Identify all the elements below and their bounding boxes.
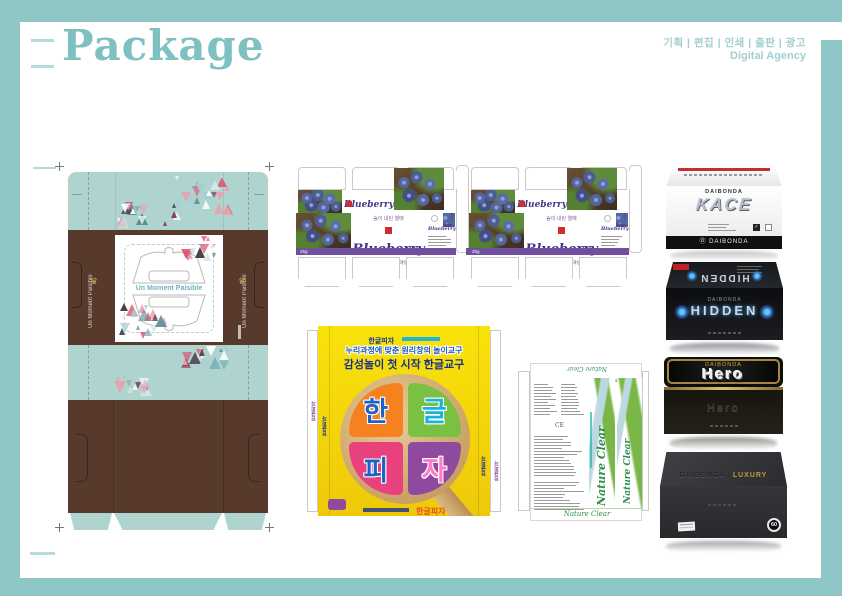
bottom-flap-outline — [525, 257, 573, 287]
triangle-decoration — [140, 386, 148, 394]
micro-text-line — [534, 466, 574, 467]
micro-text-line — [428, 239, 451, 240]
triangle-decoration — [219, 348, 223, 352]
berry-photo-patch — [443, 213, 455, 227]
handle-cutout — [76, 434, 88, 482]
crown-icon: ♛ — [238, 276, 246, 287]
front-micro-text — [708, 222, 740, 233]
micro-text-line — [534, 399, 556, 400]
left-flap-outline — [518, 371, 530, 511]
handle-cutout — [71, 262, 82, 308]
micro-text-line — [561, 402, 579, 403]
bottle-flap-outline — [456, 165, 469, 253]
triangle-decoration — [212, 253, 216, 258]
micro-text-line — [601, 236, 622, 237]
instruction-text-block-3 — [534, 434, 585, 478]
margin-dash-top — [33, 167, 56, 169]
registration-mark-icon — [55, 523, 64, 532]
bottom-flap — [224, 513, 266, 530]
flap-notch — [72, 194, 82, 195]
bottom-flap — [70, 513, 112, 530]
micro-text-line — [534, 506, 579, 507]
services-line: 기획 | 편집 | 인쇄 | 출판 | 광고 — [663, 35, 806, 50]
triangle-decoration — [136, 325, 140, 330]
face-title: Nature Clear — [595, 386, 608, 506]
triangle-decoration — [202, 200, 210, 209]
fold-line — [223, 400, 224, 513]
micro-text-line — [428, 245, 446, 246]
triangle-decoration — [114, 381, 126, 393]
box-lid: HIDDEN — [666, 262, 783, 288]
triangle-decoration — [125, 203, 131, 210]
micro-text-line — [708, 230, 736, 231]
bottom-flap-outline — [471, 257, 519, 287]
face-panel-a: Nature Clear — [589, 378, 615, 510]
box-lid — [666, 166, 782, 186]
triangle-decoration — [138, 205, 148, 215]
registration-mark-icon — [265, 162, 274, 171]
side-flap-left: 한글피자 — [307, 330, 318, 512]
triangle-cluster — [113, 375, 155, 397]
micro-text-line — [534, 396, 551, 397]
triangle-decoration — [171, 211, 177, 218]
slice-pi: 피 — [349, 442, 403, 496]
micro-text-line — [534, 439, 563, 440]
side-mini-title: Blueberry — [428, 226, 456, 232]
margin-dash-bottom — [30, 552, 55, 555]
frame-right — [821, 40, 842, 578]
triangle-decoration — [144, 305, 148, 310]
inner-side-label: 한글피자 — [321, 366, 328, 436]
fold-line — [248, 345, 249, 400]
micro-text-line — [601, 242, 618, 243]
handle-cutout — [254, 262, 265, 308]
triangle-decoration — [140, 332, 146, 339]
triangle-decoration — [122, 314, 126, 319]
mini-logo-seal — [346, 201, 352, 207]
frame-bottom — [0, 578, 842, 596]
brand-label: DAIBONDA — [680, 472, 726, 479]
front-micro-text — [710, 425, 738, 427]
micro-text-line — [561, 387, 577, 388]
glow-light — [759, 304, 775, 320]
berry-photo-patch — [471, 190, 515, 213]
box-front: Hero — [664, 390, 783, 434]
micro-text-line — [534, 488, 564, 489]
bottom-flap-outline — [352, 257, 400, 287]
top-logo-bar — [402, 337, 440, 341]
micro-text-line — [534, 414, 550, 415]
box-front: DAIBONDA HIDDEN — [666, 288, 783, 340]
dieline-un-moment: Un Moment Paisible ♛ Un Moment Paisible … — [68, 172, 268, 530]
footer-label: 한글피자 — [416, 507, 445, 516]
side-face: Blueberry — [599, 213, 629, 248]
pizza-slices: 한 글 피 자 — [349, 383, 461, 495]
hang-hole — [431, 215, 438, 222]
glow-light — [674, 304, 690, 320]
micro-text-line — [561, 408, 577, 409]
tagline: 숲이 내린 열매 — [351, 215, 426, 222]
micro-text-line — [561, 414, 584, 415]
front-name-embossed: Hero — [664, 402, 783, 414]
box-lid: DAIBONDA Hero — [664, 357, 783, 387]
front-micro-text — [708, 504, 738, 506]
micro-text-line — [534, 445, 571, 446]
dieline-blueberry-1: Blueberry 숲이 내린 열매 Blueberry ◯ 아로니아야생블루베… — [296, 163, 470, 291]
hang-hole — [604, 215, 611, 222]
micro-text-line — [534, 500, 570, 501]
slice-han: 한 — [349, 383, 403, 437]
micro-text-line — [561, 384, 575, 385]
micro-text-line — [534, 451, 582, 452]
micro-text-line — [534, 411, 557, 412]
main-photo — [296, 213, 351, 248]
front-face-panel: Un Moment Paisible — [115, 235, 223, 342]
micro-text-line — [534, 457, 564, 458]
side-panel-text: Un Moment Paisible — [88, 248, 94, 328]
triangle-decoration — [216, 192, 224, 201]
triangle-decoration — [201, 236, 207, 242]
footer-micro-bar — [363, 508, 409, 512]
front-micro-text — [708, 332, 741, 334]
lid-gold-frame: DAIBONDA Hero — [667, 359, 780, 384]
micro-text-line — [708, 227, 726, 228]
triangle-cluster — [180, 236, 222, 262]
triangle-decoration — [198, 355, 210, 367]
agency-line: Digital Agency — [730, 50, 806, 62]
white-label — [678, 522, 695, 532]
pizza-paddle: 한 글 피 자 — [340, 374, 470, 504]
reflection — [670, 437, 777, 450]
side-micro-text — [428, 234, 452, 248]
brand-mark-icon: Ⓓ — [699, 239, 706, 245]
triangle-decoration — [138, 309, 150, 321]
portfolio-page: Package 기획 | 편집 | 인쇄 | 출판 | 광고 Digital A… — [0, 0, 842, 596]
bottom-flap — [114, 513, 222, 530]
box-hangul-pizza: 한글피자 한글피자 한글피자 한글피자 한글피자 누리과정에 맞춘 원리창의 놀… — [307, 324, 501, 520]
pizza-line2: 감성놀이 첫 시작 한글교구 — [318, 356, 490, 372]
box-lid: DAIBONDA LUXURY — [660, 452, 787, 486]
bottle-flap-outline — [629, 165, 642, 253]
instruction-text-block-1 — [534, 382, 558, 417]
triangle-decoration — [130, 308, 138, 317]
registration-mark-icon — [265, 523, 274, 532]
side-flap-right: 한글피자 — [490, 330, 501, 512]
box-front: 60 — [660, 486, 787, 538]
micro-text-line — [561, 396, 576, 397]
fold-line — [88, 172, 89, 230]
checkbox-empty — [765, 224, 772, 231]
bottom-flap-label: Nature Clear — [531, 510, 643, 518]
glow-light — [686, 270, 698, 282]
box-base-band: Ⓓ DAIBONDA — [666, 236, 782, 249]
fold-line — [248, 172, 249, 230]
micro-text-line — [561, 390, 575, 391]
top-flap-outline — [471, 167, 519, 190]
side-flap-label: 한글피자 — [493, 421, 500, 481]
micro-text-line — [534, 387, 553, 388]
micro-text-line — [534, 390, 552, 391]
top-logo: 한글피자 — [368, 338, 394, 345]
bottom-flap-outline — [406, 257, 454, 287]
triangle-decoration — [196, 184, 206, 194]
micro-text-line — [534, 494, 565, 495]
micro-text-line — [534, 436, 568, 437]
micro-text-line — [534, 448, 562, 449]
side-micro-text — [601, 234, 625, 248]
fold-line — [113, 400, 114, 513]
triangle-decoration — [222, 205, 232, 215]
micro-text-line — [737, 266, 762, 267]
micro-text-line — [601, 239, 619, 240]
triangle-decoration — [116, 378, 120, 382]
triangle-decoration — [211, 237, 215, 242]
weight-label: 25g — [300, 249, 308, 254]
micro-text-line — [534, 503, 580, 504]
checkbox-checked: ✓ — [753, 224, 760, 231]
micro-text-line — [534, 485, 576, 486]
mini-logo-seal — [519, 201, 525, 207]
micro-text-line — [534, 402, 548, 403]
mini-logo-block: Blueberry — [344, 192, 392, 212]
reflection — [670, 251, 778, 261]
micro-text-line — [601, 245, 615, 246]
triangle-decoration — [203, 252, 211, 261]
triangle-decoration — [182, 359, 188, 365]
barcode-mark — [238, 325, 241, 339]
reflection — [670, 343, 779, 355]
lid-brand-row: DAIBONDA LUXURY — [660, 464, 787, 482]
berry-photo-patch — [394, 168, 444, 210]
triangle-decoration — [119, 328, 125, 335]
micro-text-line — [534, 393, 556, 394]
face-subtext-bar — [590, 412, 592, 468]
mini-logo-block: Blueberry — [517, 192, 565, 212]
triangle-decoration — [155, 315, 167, 327]
micro-text-line — [561, 405, 579, 406]
dieline-nature-clear: Nature Clear ▲ BLOOMING CE Nature Clear … — [518, 361, 649, 526]
triangle-decoration — [212, 244, 216, 248]
side-mini-title: Blueberry — [601, 226, 629, 232]
micro-text-line — [534, 408, 550, 409]
top-flap-outline — [298, 167, 346, 190]
berry-photo-patch — [567, 168, 617, 210]
top-flap-outline — [525, 167, 573, 190]
triangle-decoration — [163, 221, 167, 226]
badge-60: 60 — [767, 518, 781, 532]
triangle-decoration — [127, 386, 133, 393]
nature-main: Nature Clear ▲ BLOOMING CE Nature Clear … — [530, 363, 642, 521]
glow-light — [751, 270, 763, 282]
bottom-flap-outline — [579, 257, 627, 287]
panel-body-lower — [68, 400, 268, 513]
registration-mark-icon — [55, 162, 64, 171]
side-flap-label: 한글피자 — [310, 361, 317, 421]
frame-left — [0, 0, 20, 596]
inner-side-label: 한글피자 — [480, 406, 487, 476]
purple-stripe: 25g — [466, 248, 629, 255]
micro-text-line — [534, 475, 574, 476]
micro-text-line — [534, 491, 584, 492]
micro-text-line — [561, 399, 578, 400]
micro-text-line — [428, 236, 446, 237]
right-flap-outline — [642, 371, 649, 511]
top-flap-label: Nature Clear — [531, 365, 643, 372]
bottom-flap-outline — [298, 257, 346, 287]
micro-text-line — [561, 411, 580, 412]
main-face: 숲이 내린 열매 Blueberry ◯ 아로니아야생블루베리 ◯ 블루베리 — [524, 213, 599, 248]
micro-text-line — [708, 224, 729, 225]
seal — [558, 227, 565, 234]
micro-text-line — [534, 384, 548, 385]
instruction-text-block-2 — [561, 382, 585, 417]
lid-name-mirrored: HIDDEN — [666, 272, 783, 283]
product-name: KACE — [665, 195, 783, 215]
micro-text-line — [534, 482, 579, 483]
red-label — [673, 264, 689, 270]
page-title: Package — [62, 21, 265, 70]
dieline-blueberry-2: Blueberry 숲이 내린 열매 Blueberry ◯ 아로니아야생블루베… — [469, 163, 643, 291]
main-face: 숲이 내린 열매 Blueberry ◯ 아로니아야생블루베리 ◯ 블루베리 — [351, 213, 426, 248]
product-name: LUXURY — [733, 472, 768, 479]
triangle-decoration — [181, 249, 191, 259]
micro-text-line — [534, 469, 574, 470]
frame-top — [0, 0, 842, 22]
triangle-decoration — [122, 376, 126, 380]
handle-cutout — [248, 434, 260, 482]
side-face: Blueberry — [426, 213, 456, 248]
purple-stripe: 25g — [296, 248, 456, 255]
seal — [385, 227, 392, 234]
product-box-kace: DAIBONDA KACE ✓ Ⓓ DAIBONDA — [666, 166, 782, 262]
main-photo — [469, 213, 524, 248]
product-box-luxury: DAIBONDA LUXURY 60 — [660, 452, 787, 552]
lid-micro-text — [684, 174, 764, 176]
triangle-cluster — [113, 198, 183, 228]
berry-photo-patch — [616, 213, 628, 227]
triangle-decoration — [175, 176, 179, 180]
top-flap-outline — [352, 167, 400, 190]
crown-icon: ♛ — [90, 276, 98, 287]
micro-text-line — [428, 242, 451, 243]
micro-text-line — [534, 460, 569, 461]
micro-text-line — [534, 497, 563, 498]
micro-text-line — [561, 393, 578, 394]
footer-row: 한글피자 — [318, 501, 490, 516]
micro-text-line — [534, 442, 571, 443]
triangle-decoration — [138, 216, 146, 225]
panel-top-lid — [68, 172, 268, 230]
pizza-line1: 누리과정에 맞춘 원리창의 놀이교구 — [318, 345, 490, 356]
bottom-flap-rule — [531, 508, 643, 509]
triangle-decoration — [117, 216, 129, 228]
triangle-decoration — [219, 360, 229, 370]
micro-text-line — [534, 463, 571, 464]
title-mark-line-1 — [31, 39, 54, 42]
reflection — [666, 541, 781, 552]
red-stripe — [678, 168, 770, 171]
flap-notch — [254, 194, 264, 195]
product-box-hidden: HIDDEN DAIBONDA HIDDEN — [666, 262, 783, 358]
product-name: Hero — [669, 366, 778, 383]
triangle-cluster — [116, 303, 172, 341]
tagline: 숲이 내린 열매 — [524, 215, 599, 222]
triangle-decoration — [206, 190, 212, 196]
ce-mark: CE — [555, 422, 564, 429]
box-front: DAIBONDA KACE ✓ — [666, 186, 782, 236]
product-box-hero: DAIBONDA Hero Hero — [664, 357, 783, 453]
berry-photo-patch — [298, 190, 342, 213]
micro-text-line — [534, 405, 555, 406]
slice-geul: 글 — [408, 383, 462, 437]
title-mark-line-2 — [31, 65, 54, 68]
panel-mid-band — [68, 345, 268, 400]
micro-text-line — [534, 472, 576, 473]
side-panel-text: Un Moment Paisible — [242, 248, 248, 328]
front-face-title: Un Moment Paisible — [115, 285, 223, 292]
triangle-cluster — [178, 345, 236, 371]
face-panel-b: Nature Clear — [617, 378, 642, 510]
face-title: Nature Clear — [623, 392, 633, 504]
weight-label: 25g — [472, 249, 480, 254]
micro-text-line — [534, 454, 577, 455]
pizza-front-face: 한글피자 한글피자 한글피자 누리과정에 맞춘 원리창의 놀이교구 감성놀이 첫… — [318, 326, 490, 516]
slice-ja: 자 — [408, 442, 462, 496]
panel-body-upper: Un Moment Paisible ♛ Un Moment Paisible … — [68, 230, 268, 345]
fold-line — [88, 345, 89, 400]
triangle-decoration — [210, 180, 220, 190]
